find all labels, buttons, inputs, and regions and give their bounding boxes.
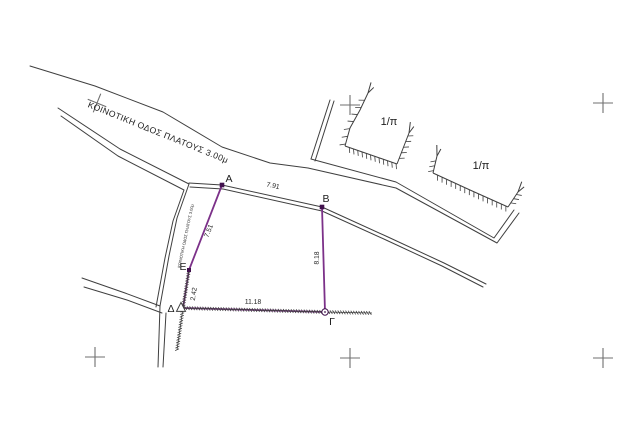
slope-hatch-1-east <box>397 133 409 164</box>
slope-hatch-1-west-ticks <box>340 100 365 145</box>
grid-crosshair <box>593 93 613 113</box>
grid-crosshair <box>340 95 360 115</box>
road-name-top: ΚΟΙΝΟΤΙΚΗ ΟΔΟΣ ΠΛΑΤΟΥΣ 3.00μ <box>87 99 230 165</box>
grid-crosshair <box>85 347 105 367</box>
road-edge-through-AB-b <box>190 187 483 287</box>
parcel-edge-A-E <box>189 185 222 270</box>
vertex-point-B <box>320 205 325 210</box>
slope-hatch-2-south-ticks <box>438 175 506 211</box>
slope-hatch-1-south-ticks <box>349 147 396 169</box>
vertex-label-E: Ε <box>179 261 186 273</box>
vertex-point-A <box>220 183 225 188</box>
slope-arrow-1-west <box>368 82 374 93</box>
slope-arrow-2-east <box>518 182 524 192</box>
vertex-label-A: Α <box>225 173 232 185</box>
slope-arrow-2-west <box>437 145 441 156</box>
neighbor-wall-left-a <box>311 100 330 159</box>
slope-hatch-1-south <box>345 146 397 164</box>
vertex-label-G: Γ <box>329 316 335 328</box>
vertex-point-E <box>187 268 191 272</box>
grid-crosshair <box>340 348 360 368</box>
survey-plan-canvas: ΚΟΙΝΟΤΙΚΗ ΟΔΟΣ ΠΛΑΤΟΥΣ 3.00μΚΟΙΝΟΤΙΚΗ ΟΔ… <box>0 0 640 429</box>
slope-hatch-1-west <box>345 93 368 146</box>
dim-BG: 8.18 <box>314 251 321 265</box>
slope-hatch-2-south <box>433 173 508 207</box>
road-edge-through-AB-a <box>189 183 486 284</box>
southwest-road-edge-a <box>82 278 160 306</box>
parcel-label-1pi-east: 1/π <box>473 160 490 172</box>
dim-DG: 11.18 <box>245 299 262 306</box>
grid-crosshair <box>593 348 613 368</box>
west-road-edge-b <box>61 116 184 307</box>
parcel-edge-B-G <box>322 207 325 312</box>
neighbor-wall-bottom-outer <box>308 168 519 243</box>
vertex-label-D: Δ <box>167 303 174 315</box>
dim-AB: 7.91 <box>266 181 281 191</box>
southwest-road-edge-b <box>84 287 162 313</box>
dim-ED: 2.42 <box>190 287 199 301</box>
slope-hatch-2-west <box>433 156 437 173</box>
survey-plan-page: ΚΟΙΝΟΤΙΚΗ ΟΔΟΣ ΠΛΑΤΟΥΣ 3.00μΚΟΙΝΟΤΙΚΗ ΟΔ… <box>0 0 640 429</box>
vertex-label-B: Β <box>322 193 329 205</box>
slope-arrow-1-east <box>409 122 414 133</box>
south-road-edge-b <box>163 313 166 367</box>
slope-hatch-2-east-ticks <box>511 195 522 204</box>
vertex-point-G-dot <box>324 311 326 313</box>
south-road-edge-a <box>158 306 160 367</box>
neighbor-wall-left-b <box>315 101 334 161</box>
parcel-label-1pi-west: 1/π <box>381 116 398 128</box>
